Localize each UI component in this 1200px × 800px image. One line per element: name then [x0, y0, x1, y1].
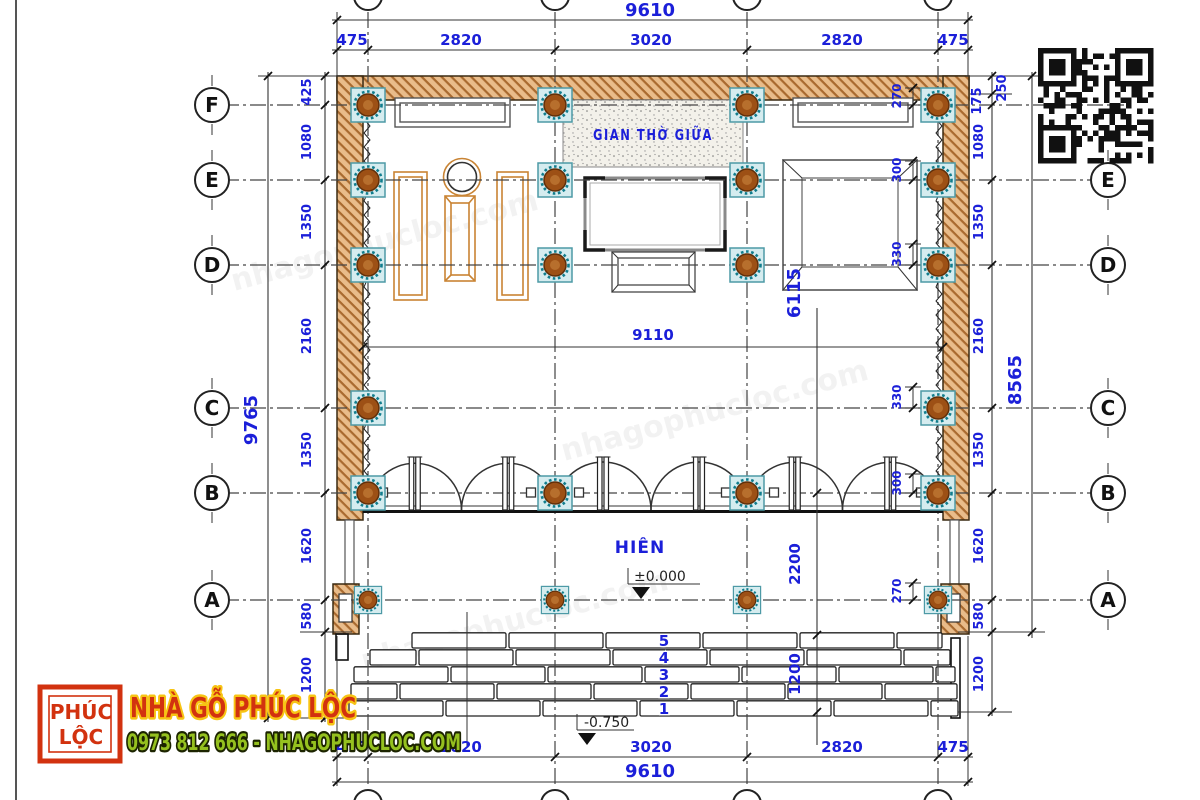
- level-minus-label: -0.750: [584, 715, 629, 731]
- level-zero-label: ±0.000: [634, 569, 686, 585]
- door-jamb-right: [950, 520, 959, 584]
- grid-label-right: E: [1101, 168, 1115, 192]
- dim-bottom-seg: 3020: [630, 738, 672, 756]
- dim-right-seg: 1080: [972, 124, 987, 160]
- grid-label-right: B: [1100, 481, 1115, 505]
- dim-left-seg: 425: [300, 78, 315, 105]
- dim-right-seg: 1620: [972, 528, 987, 564]
- dim-offset-C: 330: [890, 384, 904, 409]
- dim-right-seg: 2160: [972, 318, 987, 354]
- dim-offset-A: 270: [890, 578, 904, 603]
- door-jamb-left: [345, 520, 354, 584]
- brand-contact: 0973 812 666 - NHAGOPHUCLOC.COM: [127, 731, 461, 756]
- dim-bottom-seg: 2820: [821, 738, 863, 756]
- grid-label-left: A: [204, 588, 220, 612]
- porch-label: HIÊN: [615, 536, 665, 558]
- wall-top: [337, 76, 969, 100]
- dim-center-steps: 1200: [786, 653, 804, 695]
- grid-label-right: D: [1100, 253, 1117, 277]
- dim-center-upper: 6115: [784, 268, 805, 318]
- dim-left-seg: 1620: [300, 528, 315, 564]
- dim-top-total: 9610: [625, 0, 675, 21]
- grid-label-right: C: [1101, 396, 1116, 420]
- wall-left: [337, 76, 363, 520]
- dim-right-seg: 175: [970, 87, 985, 114]
- stub-inset-left: [339, 594, 352, 622]
- dim-left-total: 9765: [241, 395, 262, 445]
- dim-right-steps: 1200: [972, 656, 987, 692]
- logo-word-top: PHÚC: [50, 700, 112, 724]
- floor-plan-drawing: nhagophucloc.com nhagophucloc.com nhagop…: [0, 0, 1200, 800]
- dim-top-seg: 475: [336, 31, 367, 49]
- step-number: 2: [659, 683, 669, 701]
- logo-frame: [40, 687, 120, 761]
- dim-left-seg: 2160: [300, 318, 315, 354]
- dim-right-seg: 1350: [972, 432, 987, 468]
- altar-table: [585, 178, 725, 250]
- dim-left-seg: 1080: [300, 124, 315, 160]
- logo-word-bottom: LỘC: [59, 725, 103, 749]
- cabinet-left-inner: [400, 103, 505, 122]
- dim-left-seg: 580: [300, 602, 315, 629]
- branding: PHÚC LỘC NHÀ GỖ PHÚC LỘC 0973 812 666 - …: [40, 686, 461, 761]
- dim-offset-B: 300: [890, 470, 904, 495]
- grid-label-left: B: [204, 481, 219, 505]
- watermark-text: nhagophucloc.com: [557, 353, 872, 469]
- dim-top-seg: 2820: [440, 31, 482, 49]
- wall-right: [943, 76, 969, 520]
- altar-bay: GIAN THỜ GIỮA: [563, 100, 743, 167]
- dim-top-seg: 2820: [821, 31, 863, 49]
- qr-code-icon: [1038, 48, 1154, 164]
- dim-inner-width: 9110: [632, 326, 674, 344]
- level-marker: [578, 733, 596, 745]
- dim-bottom-seg: 475: [937, 738, 968, 756]
- grid-label-left: E: [205, 168, 219, 192]
- dim-top-seg: 475: [937, 31, 968, 49]
- steps: 5 4 3 2 1: [349, 612, 958, 748]
- dim-right-seg: 1350: [972, 204, 987, 240]
- grid-label-right: A: [1100, 588, 1116, 612]
- grid-label-left: F: [205, 93, 219, 117]
- step-bricks: [349, 633, 958, 716]
- dim-offset-D: 330: [890, 241, 904, 266]
- dim-offset-F: 270: [890, 83, 904, 108]
- grid-label-left: D: [204, 253, 221, 277]
- dim-center-porch: 2200: [786, 543, 804, 585]
- round-table: [448, 163, 477, 192]
- step-number: 4: [659, 649, 669, 667]
- dim-top-seg: 3020: [630, 31, 672, 49]
- base-bracket-left: [336, 634, 348, 660]
- dim-right-seg: 250: [995, 74, 1010, 101]
- step-number: 5: [659, 632, 669, 650]
- dim-left-seg: 1350: [300, 204, 315, 240]
- offering-table-inner: [618, 258, 689, 285]
- step-number: 1: [659, 700, 669, 718]
- step-number: 3: [659, 666, 669, 684]
- dim-right-total: 8565: [1005, 355, 1026, 405]
- brand-title: NHÀ GỖ PHÚC LỘC: [130, 686, 356, 724]
- dim-offset-E: 300: [890, 157, 904, 182]
- grid-label-left: C: [205, 396, 220, 420]
- dim-left-seg: 1350: [300, 432, 315, 468]
- altar-room-label: GIAN THỜ GIỮA: [593, 125, 713, 144]
- dim-right-seg: 580: [972, 602, 987, 629]
- dim-left-seg: 1200: [300, 657, 315, 693]
- dim-bottom-total: 9610: [625, 761, 675, 782]
